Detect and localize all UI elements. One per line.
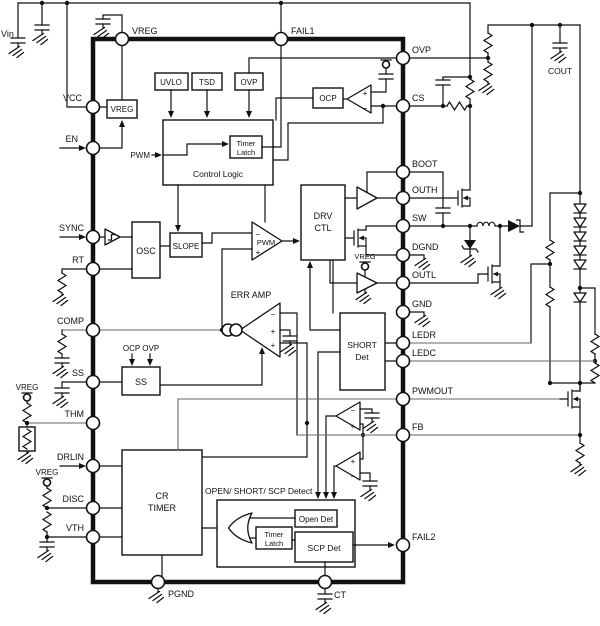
pin-en <box>87 142 100 155</box>
plus-sign: + <box>271 341 276 350</box>
vin-label: Vin <box>1 29 14 39</box>
slope-label: SLOPE <box>173 242 200 251</box>
plus-sign: + <box>271 327 276 336</box>
pin-sw <box>397 220 410 233</box>
thm-pullup-label: VREG <box>16 383 39 392</box>
timer-latch2-label-1: Timer <box>265 530 284 539</box>
comp-capacitor <box>55 358 69 363</box>
err-ref-capacitor <box>283 336 297 341</box>
pin-label-pwmout: PWMOUT <box>412 386 453 396</box>
dgnd-ground-icon <box>415 259 430 270</box>
pin-label-vcc: VCC <box>63 93 83 103</box>
plus-sign: + <box>256 248 261 257</box>
plus-sign: + <box>351 422 356 431</box>
sync-buffer <box>105 229 120 245</box>
internal-top-logic: VREG UVLO TSD OVP Timer Latch Control Lo… <box>100 46 397 186</box>
boot-capacitor <box>436 208 450 213</box>
ss-capacitor <box>55 388 69 393</box>
pin-ledc <box>397 355 410 368</box>
pin-vcc <box>87 101 100 114</box>
reference-source-icon <box>383 61 390 68</box>
drv-ctl-label-2: CTL <box>314 223 331 233</box>
pin-comp <box>87 324 100 337</box>
vreg-capacitor <box>96 19 110 24</box>
plus-sign: + <box>363 89 368 98</box>
comp1-capacitor <box>365 413 379 418</box>
timer-latch-label-1: Timer <box>237 139 256 148</box>
gm-source-icon <box>230 324 242 336</box>
vreg-source-icon <box>362 263 369 270</box>
fb-comparator-2 <box>336 452 360 480</box>
ocp-comparator <box>347 85 371 113</box>
comp2-capacitor <box>363 481 377 486</box>
ledr-divider-r1 <box>546 240 554 260</box>
ocp-label: OCP <box>319 94 336 103</box>
pin-vth <box>87 531 100 544</box>
pin-rt <box>87 263 100 276</box>
cr-timer-label-1: CR <box>156 491 169 501</box>
pwm-comparator-label: PWM <box>257 238 275 247</box>
control-logic-label: Control Logic <box>193 169 244 179</box>
plus-sign: + <box>351 457 356 466</box>
short-det-label-1: SHORT <box>347 340 377 350</box>
pin-label-boot: BOOT <box>412 159 438 169</box>
pin-sync <box>87 231 100 244</box>
drv-vreg-label: VREG <box>354 252 375 261</box>
pin-label-disc: DISC <box>62 494 84 504</box>
ledc-resistor-2 <box>591 363 599 383</box>
cout-label: COUT <box>548 66 572 76</box>
pin-boot <box>397 166 410 179</box>
pin-label-ovp: OVP <box>412 45 431 55</box>
tsd-label: TSD <box>199 78 215 87</box>
pin-dgnd <box>397 249 410 262</box>
vreg-block-label: VREG <box>111 105 134 114</box>
pin-label-ct: CT <box>334 590 346 600</box>
disc-resistor-2 <box>43 512 51 532</box>
pin-gnd <box>397 306 410 319</box>
disc-pullup-label: VREG <box>36 468 59 477</box>
pin-label-drlin: DRLIN <box>57 452 84 462</box>
pin-fail1 <box>275 33 288 46</box>
comp-resistor <box>58 334 66 354</box>
pin-label-comp: COMP <box>57 316 84 326</box>
pin-cs <box>397 100 410 113</box>
pin-drlin <box>87 460 100 473</box>
led-string <box>574 204 586 391</box>
detect-title: OPEN/ SHORT/ SCP Detect <box>205 486 313 496</box>
ss-label: SS <box>135 377 147 387</box>
driver-section: DRV CTL VREG <box>301 172 397 304</box>
timer-latch2-label-2: Latch <box>265 539 283 548</box>
ovp-label: OVP <box>241 78 258 87</box>
pin-label-ledr: LEDR <box>412 330 437 340</box>
ocp-ref-capacitor <box>379 74 393 79</box>
ovp-divider-r2 <box>484 62 492 82</box>
scp-det-label: SCP Det <box>308 543 342 553</box>
ss-inputs-label: OCP OVP <box>123 344 159 353</box>
ct-capacitor <box>318 594 332 599</box>
ledc-resistor-1 <box>591 334 599 354</box>
pin-ss <box>87 376 100 389</box>
pin-ledr <box>397 337 410 350</box>
ovp-divider-r1 <box>484 33 492 53</box>
fb-comparator-1 <box>336 402 360 430</box>
pin-label-fail1: FAIL1 <box>291 26 315 36</box>
pin-label-ledc: LEDC <box>412 348 437 358</box>
cs-parallel-resistor <box>466 79 474 99</box>
pin-label-vth: VTH <box>66 523 84 533</box>
osc-label: OSC <box>136 246 156 256</box>
high-side-mosfet <box>450 189 470 207</box>
ledr-divider-r2 <box>546 287 554 307</box>
low-side-mosfet <box>480 265 500 283</box>
pin-fail2 <box>397 539 410 552</box>
pin-label-vreg: VREG <box>132 26 158 36</box>
pin-ct <box>319 576 332 589</box>
pin-disc <box>87 502 100 515</box>
outl-driver-buffer <box>357 273 377 293</box>
minus-sign: − <box>271 310 276 319</box>
pin-ovp <box>397 52 410 65</box>
pin-vreg <box>116 33 129 46</box>
timer-latch-label-2: Latch <box>237 148 255 157</box>
rt-resistor <box>58 273 66 293</box>
pin-pgnd <box>152 576 165 589</box>
zener-diode <box>464 240 476 249</box>
vin-capacitor-2 <box>35 25 49 30</box>
thm-pullup-resistor <box>23 403 31 423</box>
pin-label-gnd: GND <box>412 299 433 309</box>
uvlo-label: UVLO <box>160 78 182 87</box>
cs-filter-capacitor <box>436 80 450 85</box>
pin-label-fb: FB <box>412 422 424 432</box>
ocp-section: OCP + − <box>313 60 397 113</box>
internal-mosfet <box>346 229 366 247</box>
pin-label-en: EN <box>65 134 78 144</box>
gnd-ground-icon <box>415 316 430 327</box>
schottky-diode <box>508 220 520 232</box>
err-amp-label: ERR AMP <box>231 290 272 300</box>
pin-fb <box>397 429 410 442</box>
ground-icon <box>33 34 48 45</box>
minus-sign: − <box>351 472 356 481</box>
pin-label-rt: RT <box>72 255 84 265</box>
pin-label-cs: CS <box>412 93 425 103</box>
pin-label-outl: OUTL <box>412 270 436 280</box>
drv-ctl-label-1: DRV <box>314 211 333 221</box>
pin-pwmout <box>397 393 410 406</box>
circuit-block-diagram: Vin VREG VREG VREG UVLO TSD OVP Timer La… <box>0 0 600 621</box>
minus-sign: − <box>363 104 368 113</box>
fb-sense-resistor <box>576 443 584 463</box>
cs-series-resistor <box>447 102 467 110</box>
pin-outl <box>397 277 410 290</box>
vth-capacitor <box>40 542 54 547</box>
cr-timer-label-2: TIMER <box>148 503 176 513</box>
ground-icon <box>9 47 24 58</box>
pwm-input-label: PWM <box>130 151 150 160</box>
vreg-source-icon <box>44 479 51 486</box>
pin-label-sw: SW <box>412 213 427 223</box>
short-detect-section: SHORT Det − + + − <box>297 260 397 501</box>
pin-thm <box>87 417 100 430</box>
pin-label-thm: THM <box>65 409 85 419</box>
error-amp-section: ERR AMP − + + SS OCP OVP <box>100 290 310 457</box>
pwm-dimming-mosfet <box>560 390 580 408</box>
pin-outh <box>397 192 410 205</box>
short-det-label-2: Det <box>355 352 369 362</box>
disc-resistor-1 <box>43 488 51 508</box>
minus-sign: − <box>351 406 356 415</box>
pin-label-fail2: FAIL2 <box>412 532 436 542</box>
cout-capacitor <box>553 43 567 48</box>
pin-label-pgnd: PGND <box>168 589 195 599</box>
pin-label-outh: OUTH <box>412 185 438 195</box>
pin-label-dgnd: DGND <box>412 242 439 252</box>
pin-label-sync: SYNC <box>59 223 85 233</box>
open-det-label: Open Det <box>299 515 334 524</box>
vreg-source-icon <box>24 394 31 401</box>
pin-label-ss: SS <box>72 368 84 378</box>
schematic-page: Vin VREG VREG VREG UVLO TSD OVP Timer La… <box>0 0 600 621</box>
